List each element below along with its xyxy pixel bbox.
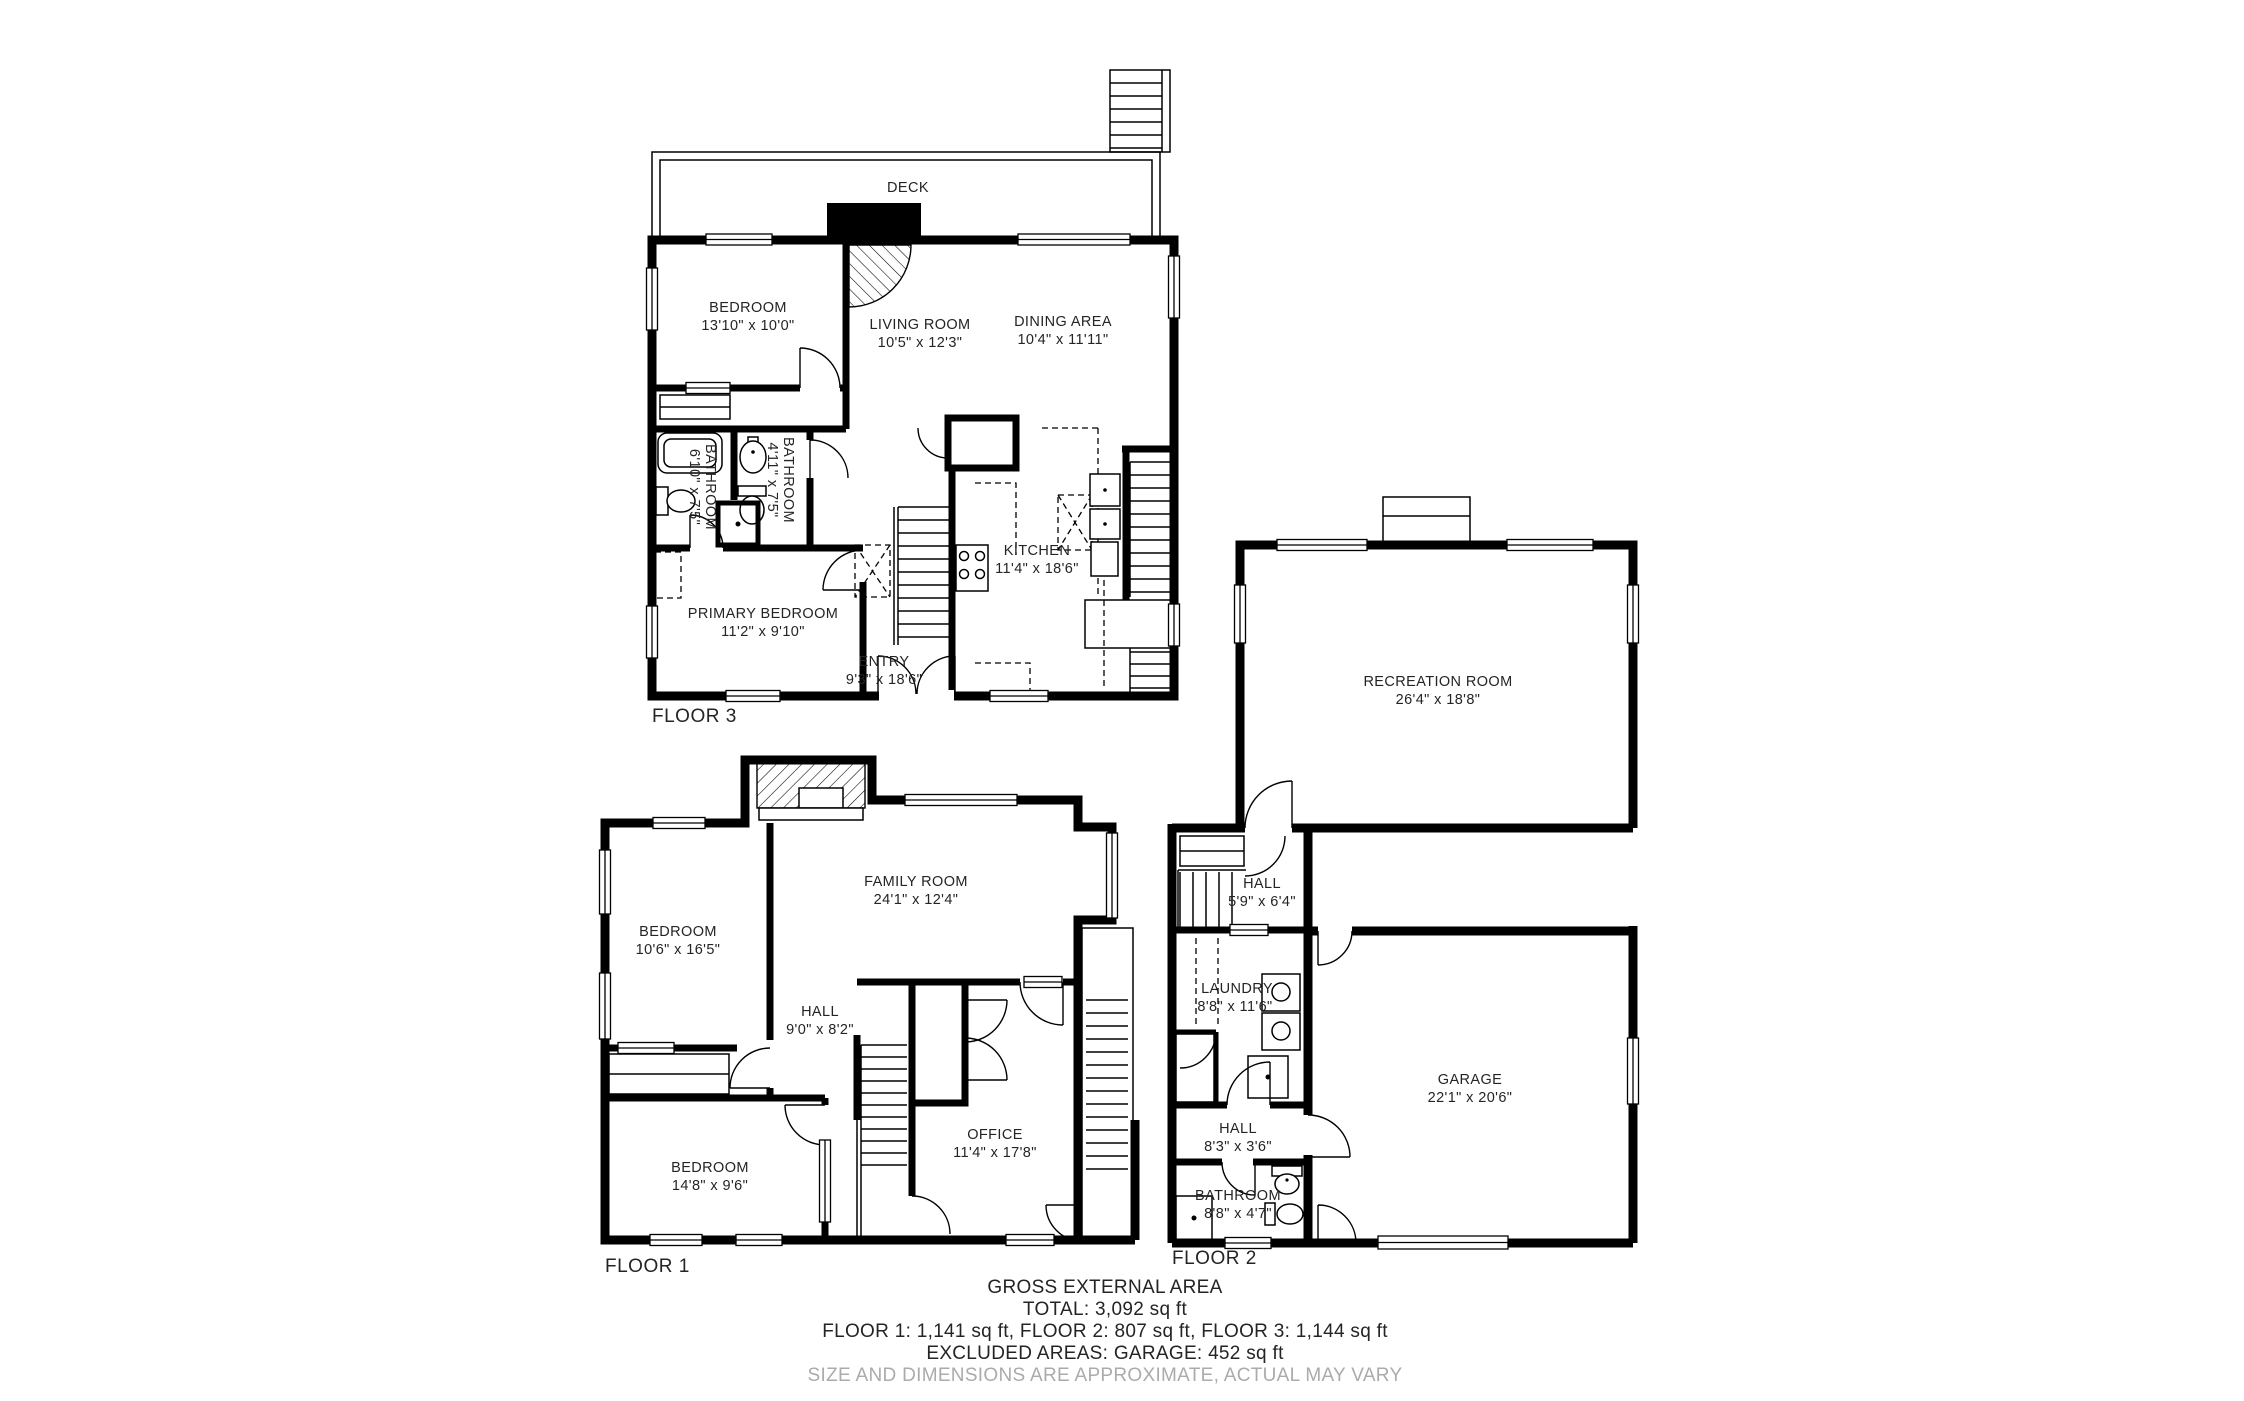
hall-closet — [948, 418, 1016, 468]
floor3-plan: DECK BEDROOM 13'10" x 10'0" LIVING ROOM … — [647, 70, 1180, 727]
room-label: KITCHEN — [1004, 543, 1070, 559]
room-label: LIVING ROOM — [869, 317, 970, 333]
room-dims: 11'4" x 17'8" — [953, 1145, 1037, 1161]
bedroom-closet — [660, 395, 730, 419]
room-dims: 11'2" x 9'10" — [721, 624, 805, 640]
room-dims: 11'4" x 18'6" — [995, 561, 1079, 577]
laundry-fixtures — [1176, 938, 1300, 1102]
stair-fan — [849, 245, 911, 307]
hall-closet — [609, 1054, 729, 1094]
room-dims: 8'8" x 11'6" — [1197, 999, 1272, 1015]
entry-stairs — [894, 507, 950, 645]
fireplace — [757, 758, 865, 820]
room-dims: 10'4" x 11'11" — [1017, 332, 1108, 348]
room-label: BEDROOM — [639, 924, 717, 940]
garage-door — [1378, 1236, 1508, 1249]
floorplan-canvas: DECK BEDROOM 13'10" x 10'0" LIVING ROOM … — [0, 0, 2244, 1401]
area-summary: GROSS EXTERNAL AREA TOTAL: 3,092 sq ft F… — [808, 1277, 1403, 1386]
room-label: BEDROOM — [709, 300, 787, 316]
room-label: LAUNDRY — [1201, 981, 1273, 997]
room-label: OFFICE — [967, 1127, 1023, 1143]
fridge-icon — [1090, 474, 1120, 576]
room-label: BATHROOM — [702, 444, 718, 530]
room-label: BEDROOM — [671, 1160, 749, 1176]
floor1-doors — [730, 982, 1082, 1241]
room-dims: 14'8" x 9'6" — [672, 1178, 748, 1194]
room-label: HALL — [801, 1004, 839, 1020]
deck-stairs — [1110, 70, 1170, 152]
room-label: ENTRY — [859, 654, 910, 670]
room-label: BATHROOM — [780, 437, 796, 523]
deck-landing — [827, 203, 921, 240]
room-dims: 9'3" x 18'6" — [846, 672, 922, 688]
room-label: PRIMARY BEDROOM — [688, 606, 839, 622]
office-closet — [912, 982, 965, 1103]
room-label: BATHROOM — [1195, 1188, 1281, 1204]
room-dims: 10'6" x 16'5" — [636, 942, 721, 958]
room-dims: 24'1" x 12'4" — [874, 892, 959, 908]
room-dims: 8'8" x 4'7" — [1204, 1206, 1272, 1222]
primary-closet — [655, 552, 681, 598]
floor1-plan: BEDROOM 10'6" x 16'5" FAMILY ROOM 24'1" … — [600, 758, 1136, 1277]
summary-total: TOTAL: 3,092 sq ft — [1023, 1299, 1188, 1320]
summary-excluded: EXCLUDED AREAS: GARAGE: 452 sq ft — [926, 1343, 1284, 1364]
room-dims: 22'1" x 20'6" — [1428, 1090, 1513, 1106]
deck-outline — [652, 152, 1160, 240]
summary-heading: GROSS EXTERNAL AREA — [987, 1277, 1222, 1298]
sink-icon — [740, 437, 766, 473]
side-stairs — [1082, 928, 1133, 1240]
floorplan-svg: DECK BEDROOM 13'10" x 10'0" LIVING ROOM … — [0, 0, 2244, 1401]
dryer-icon — [1262, 1013, 1300, 1050]
room-dims: 5'9" x 6'4" — [1228, 894, 1296, 910]
floor1-label: FLOOR 1 — [605, 1256, 690, 1277]
room-label: DINING AREA — [1014, 314, 1112, 330]
room-label: HALL — [1219, 1121, 1257, 1137]
stove-icon — [956, 545, 988, 591]
room-label: FAMILY ROOM — [864, 874, 968, 890]
floor2-label: FLOOR 2 — [1172, 1248, 1257, 1269]
bay-window — [1383, 497, 1470, 543]
hall-closet — [1180, 836, 1244, 866]
summary-floors: FLOOR 1: 1,141 sq ft, FLOOR 2: 807 sq ft… — [822, 1321, 1388, 1342]
room-dims: 4'11" x 7'5" — [764, 442, 780, 517]
room-label: HALL — [1243, 876, 1281, 892]
floor3-label: FLOOR 3 — [652, 706, 737, 727]
room-dims: 6'10" x 7'5" — [686, 449, 702, 525]
summary-disclaimer: SIZE AND DIMENSIONS ARE APPROXIMATE, ACT… — [808, 1365, 1403, 1386]
room-label: GARAGE — [1438, 1072, 1502, 1088]
room-dims: 10'5" x 12'3" — [878, 335, 963, 351]
deck-label: DECK — [887, 180, 929, 196]
room-dims: 26'4" x 18'8" — [1396, 692, 1481, 708]
floor2-plan: RECREATION ROOM 26'4" x 18'8" HALL 5'9" … — [1172, 497, 1639, 1269]
center-stairs — [857, 1045, 907, 1240]
room-dims: 9'0" x 8'2" — [786, 1022, 854, 1038]
room-label: RECREATION ROOM — [1363, 674, 1512, 690]
room-dims: 13'10" x 10'0" — [701, 318, 794, 334]
room-dims: 8'3" x 3'6" — [1204, 1139, 1272, 1155]
